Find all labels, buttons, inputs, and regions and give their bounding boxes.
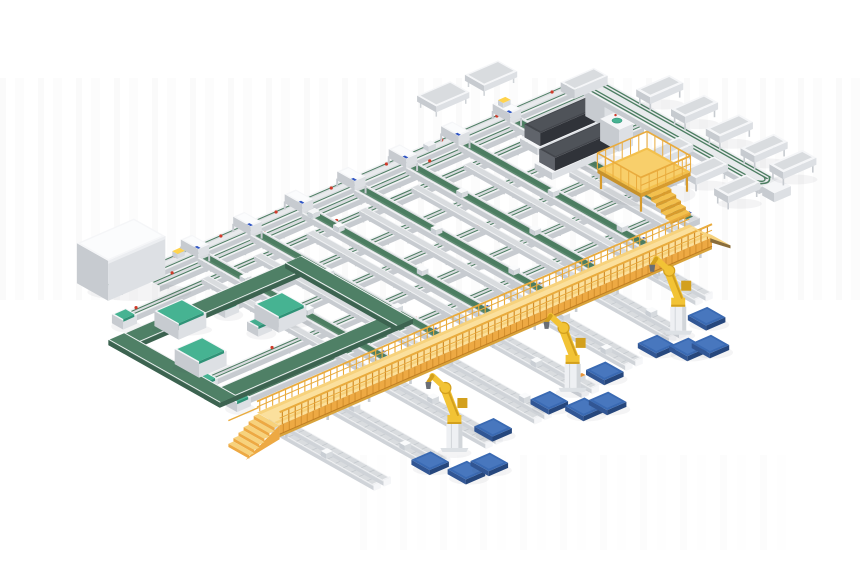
render-canvas	[0, 0, 860, 580]
factory-render	[0, 0, 860, 580]
